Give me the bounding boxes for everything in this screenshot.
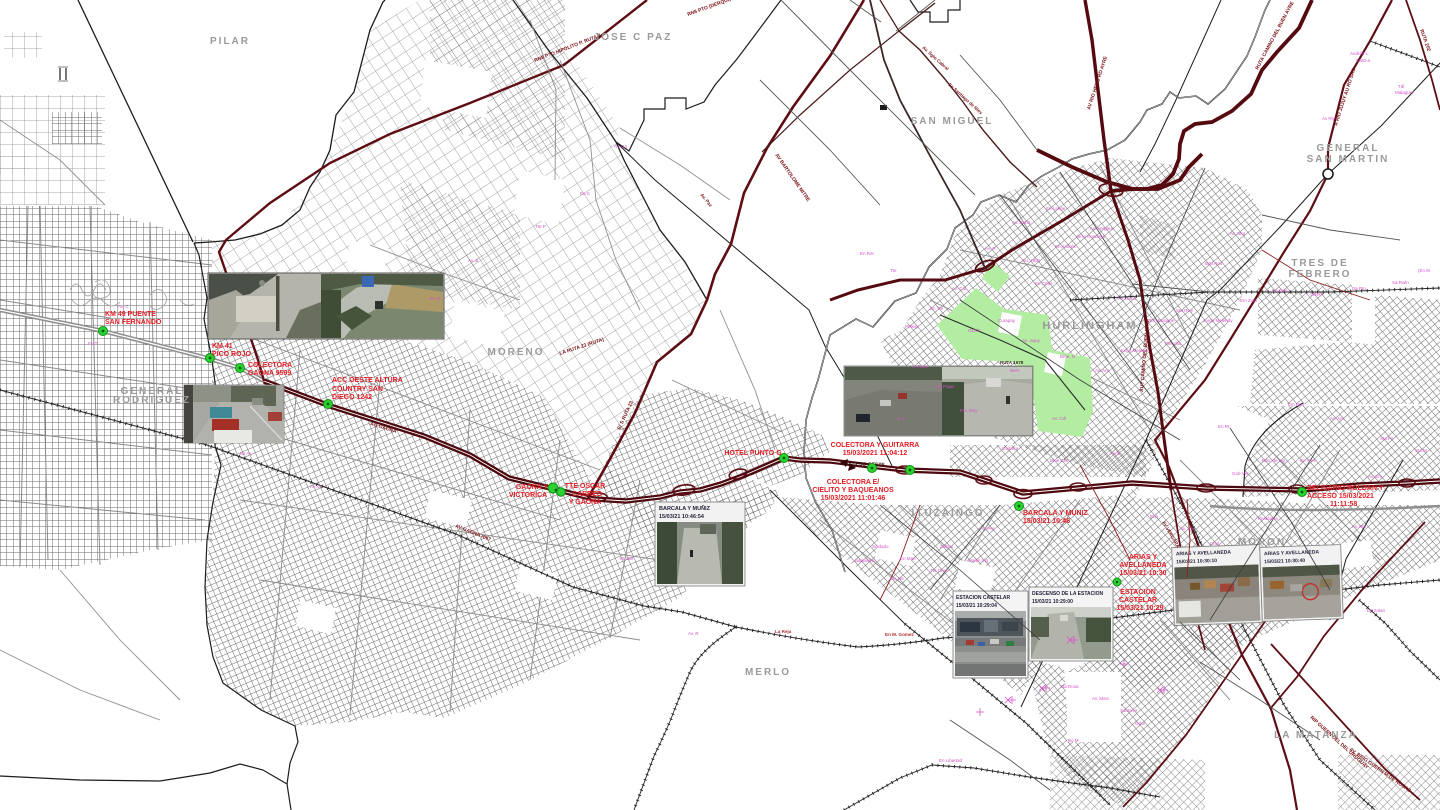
svg-text:Av. Em: Av. Em [1368,474,1382,479]
svg-text:BARCALA Y MUÑIZ: BARCALA Y MUÑIZ [659,505,711,512]
svg-text:CIELITO Y BAQUEANOS: CIELITO Y BAQUEANOS [812,487,894,494]
svg-text:BELISARIO ROLDAN Y: BELISARIO ROLDAN Y [1307,485,1384,492]
svg-text:En Rt: En Rt [1218,424,1230,429]
svg-text:Av. SN: Av. SN [1180,526,1194,531]
svg-text:Av. Arz: Av. Arz [1095,368,1110,373]
svg-text:ESTACION: ESTACION [1120,589,1156,596]
svg-text:MORON: MORON [1238,537,1286,548]
svg-text:Av. Cdr: Av. Cdr [1052,416,1067,421]
svg-text:Sta M: Sta M [1415,448,1427,453]
svg-text:Martin Irig: Martin Irig [968,558,989,563]
svg-text:Bdo. de Irig: Bdo. de Irig [1262,458,1286,463]
svg-text:Em Bulogne: Em Bulogne [1150,318,1175,323]
svg-text:15/03/21 10:30: 15/03/21 10:30 [1119,570,1166,577]
svg-text:SAN MIGUEL: SAN MIGUEL [911,116,994,127]
svg-text:VIERA: VIERA [1310,292,1324,297]
svg-text:En Rer: En Rer [860,251,875,256]
svg-text:MORENO: MORENO [488,347,545,358]
svg-text:Bern: Bern [1010,368,1020,373]
svg-text:Av. Jujuy: Av. Jujuy [1022,338,1041,343]
svg-text:6380-a: 6380-a [1356,58,1371,63]
svg-text:Bdo Ros: Bdo Ros [1205,261,1223,266]
svg-text:Gdor: Gdor [1135,721,1146,726]
svg-text:Bme. N: Bme. N [1060,354,1075,359]
svg-text:KM 49 PUENTE: KM 49 PUENTE [105,311,156,318]
svg-text:Y GAONA: Y GAONA [569,499,602,506]
svg-text:GAONA Y: GAONA Y [516,484,549,491]
svg-text:Sta Rosa: Sta Rosa [1060,684,1079,689]
svg-text:La Reja: La Reja [775,629,792,634]
svg-text:ACCESO 15/03/2021: ACCESO 15/03/2021 [1307,493,1374,500]
svg-text:Pte. Illia: Pte. Illia [1165,341,1182,346]
svg-text:Bria: Bria [1150,514,1158,519]
svg-text:Tdl: Tdl [1398,84,1404,89]
svg-text:PILAR: PILAR [210,36,250,47]
svg-text:Lis Pojas: Lis Pojas [936,384,955,389]
svg-text:15/03/21 10:29:04: 15/03/21 10:29:04 [956,603,997,609]
svg-text:GAONA 9599: GAONA 9599 [248,370,291,377]
svg-text:Av. Mrq: Av. Mrq [1230,231,1246,236]
svg-text:Gob Ver: Gob Ver [1232,471,1249,476]
svg-text:RODRIGUEZ: RODRIGUEZ [113,395,191,406]
svg-text:Em Bria: Em Bria [1288,402,1305,407]
svg-text:PICO ROJO: PICO ROJO [212,351,251,358]
svg-text:KM 41: KM 41 [212,343,233,350]
svg-text:GENERAL: GENERAL [1317,143,1380,154]
svg-text:Bo. Ne: Bo. Ne [890,576,904,581]
svg-text:15/03/2021 11:01:46: 15/03/2021 11:01:46 [821,495,886,502]
svg-text:En Libertad: En Libertad [939,758,963,763]
svg-text:TRES DE: TRES DE [1291,258,1348,269]
svg-text:FEBRERO: FEBRERO [1289,269,1352,280]
svg-text:11:11:58: 11:11:58 [1330,501,1357,508]
svg-text:Av. Marc: Av. Marc [1092,696,1110,701]
svg-text:15/03/21 10:29: 15/03/21 10:29 [1116,605,1163,612]
svg-text:Soldado: Soldado [872,544,889,549]
svg-text:En Cmte: En Cmte [1035,281,1053,286]
svg-text:En Tres: En Tres [1300,458,1316,463]
svg-text:Rivadavia: Rivadavia [1258,516,1278,521]
svg-text:BARCALA Y MUNIZ: BARCALA Y MUNIZ [1023,510,1089,517]
svg-text:Bo M: Bo M [1068,738,1079,743]
svg-text:Bme Crd: Bme Crd [1050,458,1068,463]
svg-text:SAN MARTIN: SAN MARTIN [1307,154,1390,165]
svg-text:En Man: En Man [900,556,916,561]
svg-text:Tte Cnel: Tte Cnel [930,568,947,573]
svg-text:15/03/21 10:46:54: 15/03/21 10:46:54 [659,514,705,520]
svg-text:Av. Per: Av. Per [980,526,995,531]
svg-text:Av. R: Av. R [688,631,699,636]
svg-text:Av. Vergara: Av. Vergara [1090,226,1114,231]
svg-text:Av. Sta B.: Av. Sta B. [1012,220,1032,225]
svg-text:COLECTORA E/: COLECTORA E/ [827,479,880,486]
svg-text:Av. C: Av. C [118,304,129,309]
svg-text:15/03/2021 11:04:12: 15/03/2021 11:04:12 [843,450,908,457]
svg-text:Av. B: Av. B [1110,451,1120,456]
svg-text:CABRED: CABRED [572,491,602,498]
svg-text:SAN FERNANDO: SAN FERNANDO [105,319,162,326]
svg-text:MERLO: MERLO [745,667,791,678]
svg-text:Santa M: Santa M [1120,708,1137,713]
svg-text:Sta Ps: Sta Ps [1380,436,1394,441]
svg-text:Av. Cn: Av. Cn [614,144,628,149]
svg-text:VICTORICA: VICTORICA [509,492,547,499]
svg-text:ITUZAINGO: ITUZAINGO [912,508,985,519]
svg-text:ESTACION CASTELAR: ESTACION CASTELAR [956,595,1010,601]
svg-text:Sa Rwln: Sa Rwln [1392,280,1409,285]
svg-text:TTE OSCAR: TTE OSCAR [565,483,605,490]
svg-text:Guitarra: Guitarra [1002,446,1019,451]
svg-text:Tte: Tte [890,268,897,273]
svg-text:A. Piree: A. Piree [912,364,929,369]
svg-text:Em Zola: Em Zola [1240,298,1257,303]
svg-text:Curapay: Curapay [998,318,1016,323]
svg-text:Da Pto: Da Pto [1352,286,1366,291]
svg-text:GEST: GEST [968,328,981,333]
svg-text:Jorge Melendy: Jorge Melendy [1203,318,1233,323]
svg-text:Malaguer: Malaguer [1395,90,1414,95]
svg-text:E.4: E.4 [898,416,905,421]
svg-text:En S: En S [580,191,590,196]
svg-text:En Zolan: En Zolan [1367,608,1386,613]
svg-text:Tte P: Tte P [535,224,546,229]
svg-text:CASTELAR: CASTELAR [1119,597,1157,604]
svg-text:Rt 200: Rt 200 [620,556,634,561]
svg-text:En M. Gomez: En M. Gomez [885,632,915,637]
svg-text:Andrés L.: Andrés L. [1350,51,1369,56]
svg-text:ARIAS Y: ARIAS Y [1129,554,1158,561]
svg-text:15/03/21 10:29:00: 15/03/21 10:29:00 [1032,599,1073,605]
svg-text:Av. Roca: Av. Roca [1118,296,1136,301]
svg-text:En Lange: En Lange [1046,206,1066,211]
svg-text:de la Rondeau: de la Rondeau [1076,234,1106,239]
svg-text:Pellegr: Pellegr [905,324,920,329]
svg-text:HOTEL PUNTO G: HOTEL PUNTO G [724,450,782,457]
svg-text:Baqueano: Baqueano [855,558,876,563]
svg-text:15/03/21 10:46: 15/03/21 10:46 [1023,518,1070,525]
svg-text:Av. Col: Av. Col [952,286,966,291]
svg-text:Av. R: Av. R [985,246,996,251]
svg-text:DIEGO 1242: DIEGO 1242 [332,394,372,401]
svg-text:DESCENSO DE LA ESTACION: DESCENSO DE LA ESTACION [1032,591,1104,597]
svg-text:Av. B: Av. B [468,258,478,263]
svg-text:JOSE C PAZ: JOSE C PAZ [594,32,673,43]
svg-text:En Andrés: En Andrés [1055,244,1077,249]
svg-text:COUNTRY SAN: COUNTRY SAN [332,386,383,393]
svg-text:Av. G: Av. G [310,484,321,489]
svg-text:En M: En M [430,296,441,301]
svg-text:COLECTORA: COLECTORA [248,362,292,369]
svg-text:Fta. Moy: Fta. Moy [960,408,978,413]
svg-text:En Zola: En Zola [1272,288,1288,293]
svg-text:(En M: (En M [1418,268,1430,273]
svg-text:Cnel: Cnel [1210,541,1219,546]
svg-text:HURLINGHAM: HURLINGHAM [1042,320,1137,332]
svg-text:LA MATANZA: LA MATANZA [1274,730,1358,741]
svg-text:Av. Pte: Av. Pte [1352,524,1367,529]
svg-text:Jorge Melendi: Jorge Melendi [1120,348,1148,353]
svg-text:En T: En T [88,341,98,346]
svg-text:Av. Am: Av. Am [1330,416,1344,421]
svg-text:Zufriat: Zufriat [940,544,954,549]
svg-text:En Tte: En Tte [930,306,944,311]
svg-text:Bs As: Bs As [240,451,252,456]
svg-text:AVELLANEDA: AVELLANEDA [1119,562,1166,569]
svg-text:Sra Rwy: Sra Rwy [1176,308,1194,313]
svg-text:AU. HEN: AU. HEN [1022,258,1040,263]
svg-text:RUTA 1678: RUTA 1678 [1000,360,1024,365]
svg-text:COLECTORA Y GUITARRA: COLECTORA Y GUITARRA [831,442,920,449]
svg-text:Av Rly: Av Rly [1322,116,1336,121]
svg-text:ACC OESTE ALTURA: ACC OESTE ALTURA [332,377,403,384]
